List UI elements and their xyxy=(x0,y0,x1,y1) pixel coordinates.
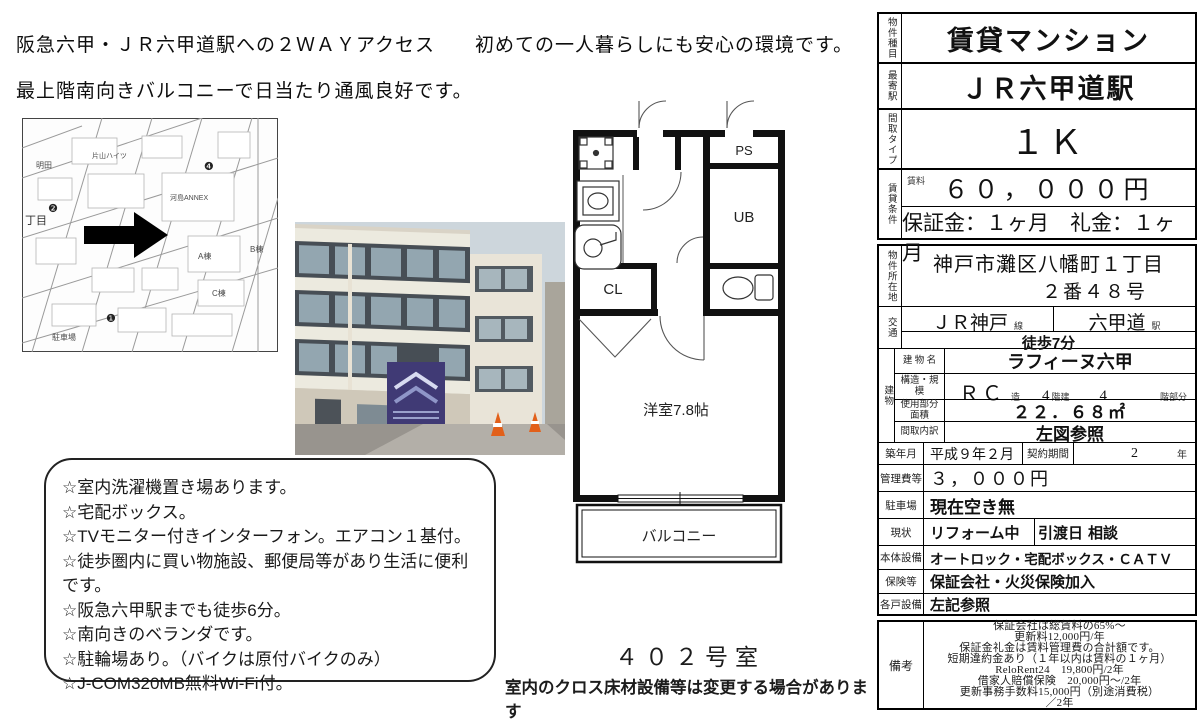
feature-item: ☆宅配ボックス。 xyxy=(62,501,480,526)
row-building-name: 建 物 名 ラフィーヌ六甲 xyxy=(895,349,1195,373)
label-building: 建物 xyxy=(879,349,895,442)
spec-table: 物件種目 賃貸マンション 最寄駅 ＪＲ六甲道駅 間取タイプ １Ｋ 賃貸条件 賃料… xyxy=(877,12,1197,710)
value-equipment: オートロック・宅配ボックス・ＣＡＴＶ xyxy=(924,546,1195,569)
value-layout-detail: 左図参照 xyxy=(945,422,1195,443)
plan-label-balcony: バルコニー xyxy=(642,528,717,545)
value-management-fee: ３，０００円 xyxy=(924,465,1195,491)
plan-label-ub: UB xyxy=(734,209,755,226)
map-label: 明田 xyxy=(36,161,52,170)
row-status: 現状 リフォーム中 引渡日 相談 xyxy=(879,518,1195,545)
map-marker: ❹ xyxy=(204,161,214,173)
label-layout-detail: 間取内訳 xyxy=(895,422,945,443)
label-parking: 駐車場 xyxy=(879,492,924,518)
label-area: 使用部分面積 xyxy=(895,400,945,421)
stove-icon xyxy=(577,181,619,221)
floor-plan: PS UB CL 洋室7.8帖 バルコニー xyxy=(563,95,795,595)
sink-icon xyxy=(575,225,621,269)
spec-table-head: 物件種目 賃貸マンション 最寄駅 ＪＲ六甲道駅 間取タイプ １Ｋ 賃貸条件 賃料… xyxy=(877,12,1197,240)
value-insurance: 保証会社・火災保険加入 xyxy=(924,570,1195,593)
photo-sign xyxy=(387,362,445,432)
label-remarks: 備考 xyxy=(879,622,924,708)
label-nearest-station: 最寄駅 xyxy=(879,64,902,108)
value-built: 平成９年２月 xyxy=(924,443,1022,464)
label-contract: 契約期間 xyxy=(1022,443,1074,464)
row-remarks: 備考 保証会社は総賃料の65%～更新料12,000円/年保証金礼金は賃料管理費の… xyxy=(879,622,1195,708)
row-parking: 駐車場 現在空き無 xyxy=(879,491,1195,518)
remarks-line: ／2年 xyxy=(1045,698,1073,709)
row-structure: 構造・規模 ＲＣ 造 4 階建 4 階部分 xyxy=(895,373,1195,399)
row-layout-detail: 間取内訳 左図参照 xyxy=(895,421,1195,443)
row-nearest-station: 最寄駅 ＪＲ六甲道駅 xyxy=(879,62,1195,108)
map-label: B棟 xyxy=(250,244,263,254)
label-building-name: 建 物 名 xyxy=(895,349,945,373)
row-layout-type: 間取タイプ １Ｋ xyxy=(879,108,1195,168)
value-property-type: 賃貸マンション xyxy=(902,14,1195,62)
room-number: ４０２号室 xyxy=(560,638,820,672)
feature-item: ☆徒歩圏内に買い物施設、郵便局等があり生活に便利です。 xyxy=(62,550,480,599)
label-layout-type: 間取タイプ xyxy=(879,110,902,168)
label-structure: 構造・規模 xyxy=(895,374,945,399)
feature-item: ☆室内洗濯機置き場あります。 xyxy=(62,476,480,501)
value-location-line1: 神戸市灘区八幡町１丁目 xyxy=(902,248,1195,277)
label-handover: 引渡日 xyxy=(1034,519,1086,545)
flyer-page: 阪急六甲・ＪＲ六甲道駅への２ＷＡＹアクセス 初めての一人暮らしにも安心の環境です… xyxy=(0,0,1200,722)
row-rent: 賃料 ６０，０００円 xyxy=(902,170,1195,206)
feature-item: ☆J-COM320MB無料Wi-Fi付。 xyxy=(62,672,480,697)
map-label: 駐車場 xyxy=(52,332,76,342)
building-photo xyxy=(295,222,565,455)
label-rent: 賃料 xyxy=(907,174,925,187)
row-area: 使用部分面積 ２２．６８㎡ xyxy=(895,399,1195,421)
label-property-type: 物件種目 xyxy=(879,14,902,62)
row-property-type: 物件種目 賃貸マンション xyxy=(879,14,1195,62)
plan-label-cl: CL xyxy=(603,281,622,298)
value-rent: ６０，０００円 xyxy=(943,170,1153,206)
value-nearest-station: ＪＲ六甲道駅 xyxy=(902,64,1195,108)
feature-item: ☆阪急六甲駅までも徒歩6分。 xyxy=(62,599,480,624)
row-insurance: 保険等 保証会社・火災保険加入 xyxy=(879,569,1195,593)
row-built-contract: 築年月 平成９年２月 契約期間 2 年 xyxy=(879,442,1195,464)
value-status: リフォーム中 xyxy=(924,519,1034,545)
value-structure: ＲＣ 造 4 階建 4 階部分 xyxy=(945,374,1195,399)
value-station: 六甲道駅 xyxy=(1054,307,1195,331)
map-label: 河島ANNEX xyxy=(170,193,208,202)
headline-sunlight: 最上階南向きバルコニーで日当たり通風良好です。 xyxy=(16,76,473,103)
spec-table-body: 物件所在地 神戸市灘区八幡町１丁目 ２番４８号 交通 ＪＲ神戸線 六甲道駅 徒歩… xyxy=(877,244,1197,616)
value-handover: 相談 xyxy=(1086,519,1195,545)
row-management-fee: 管理費等 ３，０００円 xyxy=(879,464,1195,491)
label-location: 物件所在地 xyxy=(879,246,902,306)
map-label: A棟 xyxy=(198,251,211,261)
row-transport: 交通 ＪＲ神戸線 六甲道駅 徒歩7分 xyxy=(879,306,1195,348)
map-label: 丁目 xyxy=(25,215,47,227)
value-contract: 2 年 xyxy=(1074,443,1195,464)
map-label: 片山ハイツ xyxy=(92,151,127,160)
label-equipment: 本体設備 xyxy=(879,546,924,569)
features-box: ☆室内洗濯機置き場あります。☆宅配ボックス。☆TVモニター付きインターフォン。エ… xyxy=(44,458,496,682)
value-building-name: ラフィーヌ六甲 xyxy=(945,349,1195,373)
plan-label-room: 洋室7.8帖 xyxy=(643,402,709,419)
location-map: 明田 片山ハイツ 河島ANNEX A棟 B棟 C棟 駐車場 丁目 ❶ ❷ ❹ xyxy=(22,118,278,352)
photo-neighbor xyxy=(545,282,565,432)
plan-label-ps: PS xyxy=(735,143,753,158)
value-area: ２２．６８㎡ xyxy=(945,400,1195,421)
feature-item: ☆駐輪場あり。（バイクは原付バイクのみ） xyxy=(62,648,480,673)
value-parking: 現在空き無 xyxy=(924,492,1195,518)
label-unit-equipment: 各戸設備 xyxy=(879,594,924,614)
feature-item: ☆TVモニター付きインターフォン。エアコン１基付。 xyxy=(62,525,480,550)
row-location: 物件所在地 神戸市灘区八幡町１丁目 ２番４８号 xyxy=(879,246,1195,306)
value-layout-type: １Ｋ xyxy=(902,110,1195,168)
row-equipment: 本体設備 オートロック・宅配ボックス・ＣＡＴＶ xyxy=(879,545,1195,569)
label-management-fee: 管理費等 xyxy=(879,465,924,491)
value-unit-equipment: 左記参照 xyxy=(924,594,1195,614)
disclaimer-note: 室内のクロス床材設備等は変更する場合があります xyxy=(505,674,875,722)
feature-item: ☆南向きのベランダです。 xyxy=(62,623,480,648)
map-label: C棟 xyxy=(212,288,226,298)
washer-icon xyxy=(579,137,613,169)
value-remarks: 保証会社は総賃料の65%～更新料12,000円/年保証金礼金は賃料管理費の合計額… xyxy=(924,622,1195,708)
photo-right-wing xyxy=(470,254,542,436)
label-transport: 交通 xyxy=(879,307,902,348)
headline-access: 阪急六甲・ＪＲ六甲道駅への２ＷＡＹアクセス 初めての一人暮らしにも安心の環境です… xyxy=(16,30,853,57)
label-rent-conditions: 賃貸条件 xyxy=(879,170,902,238)
value-rail-line: ＪＲ神戸線 xyxy=(902,307,1054,331)
label-built: 築年月 xyxy=(879,443,924,464)
spec-table-remarks: 備考 保証会社は総賃料の65%～更新料12,000円/年保証金礼金は賃料管理費の… xyxy=(877,620,1197,710)
map-marker: ❶ xyxy=(106,313,116,325)
row-building-group: 建物 建 物 名 ラフィーヌ六甲 構造・規模 ＲＣ 造 4 階建 4 xyxy=(879,348,1195,442)
map-marker: ❷ xyxy=(48,203,58,215)
row-unit-equipment: 各戸設備 左記参照 xyxy=(879,593,1195,614)
value-location-line2: ２番４８号 xyxy=(902,277,1195,304)
label-insurance: 保険等 xyxy=(879,570,924,593)
row-rent-conditions: 賃貸条件 賃料 ６０，０００円 保証金：１ヶ月 礼金：１ヶ月 xyxy=(879,168,1195,238)
label-status: 現状 xyxy=(879,519,924,545)
